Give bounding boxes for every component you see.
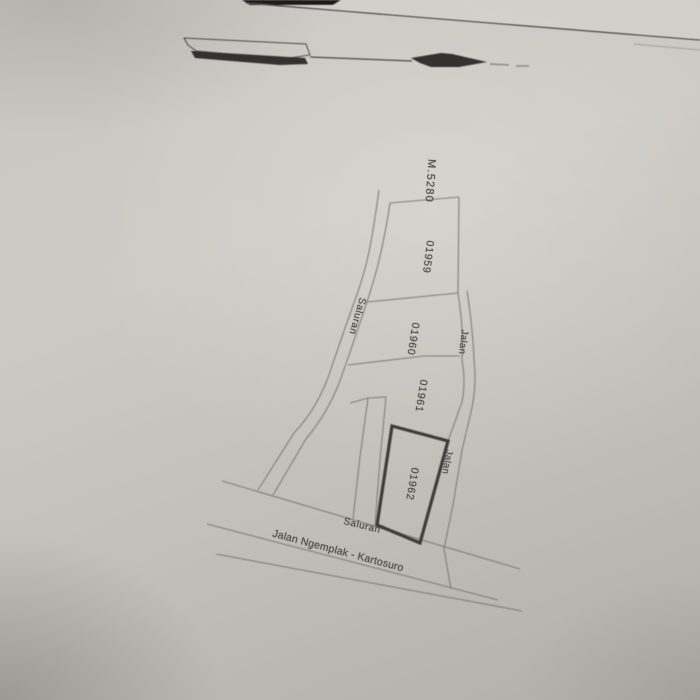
parcel-01959-bottom-line (367, 293, 458, 302)
arrow-fading-dashes (490, 64, 529, 66)
cadastral-map-figure (0, 0, 700, 700)
paper-edge-faint-line (634, 44, 700, 50)
bottom-road-top-line (207, 524, 498, 600)
parcel-boundaries (207, 190, 522, 611)
strip-parcel-top-edge (368, 397, 386, 398)
north-arrow-icon (184, 38, 529, 67)
arrow-filled-bar (191, 51, 308, 65)
photo-paper-edge (242, 0, 700, 50)
photographed-cadastral-document: M.5280 01959 01960 01961 01962 Saluran J… (0, 0, 700, 700)
channel-left-edge (258, 190, 379, 490)
arrow-fletching (411, 53, 487, 67)
channel-right-edge (273, 203, 390, 495)
arrow-shaft (310, 57, 412, 61)
parcel-01959-right-edge (458, 197, 459, 293)
parcel-01960-bottom-line (348, 356, 460, 365)
road-left-edge (448, 293, 464, 441)
strip-connector-line (350, 398, 368, 403)
strip-parcel-left-edge (353, 398, 368, 519)
